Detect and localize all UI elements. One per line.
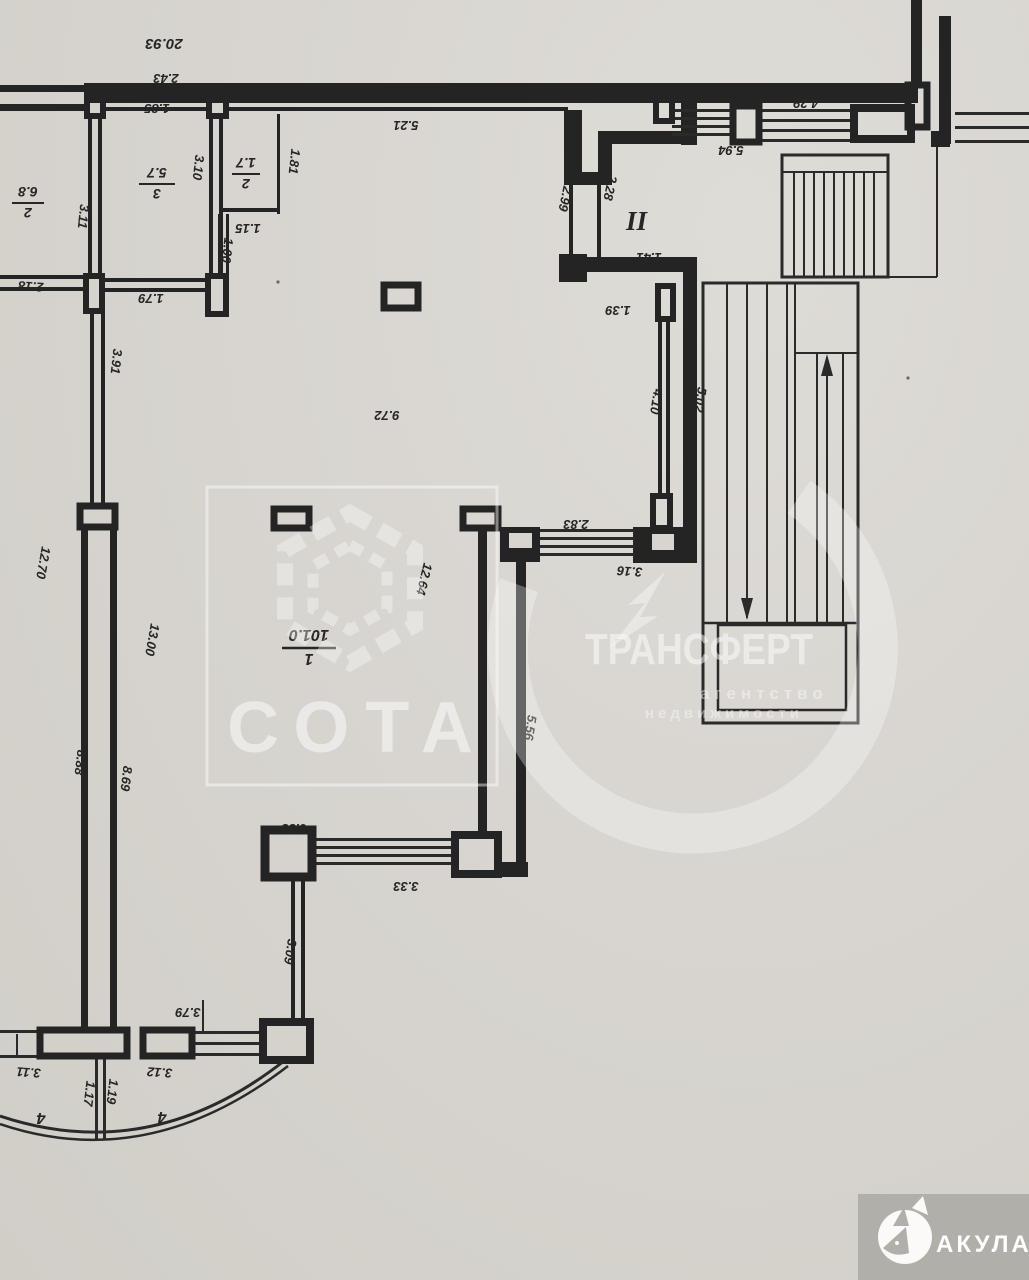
dim-4-29: 4.29: [793, 96, 820, 111]
dim-8-69: 8.69: [117, 765, 135, 793]
dim-3-12: 3.12: [146, 1064, 173, 1081]
transfert-sub2: недвижимости: [645, 705, 803, 722]
dim-1-79: 1.79: [138, 291, 164, 306]
sota-hexagon-logo: [285, 513, 415, 663]
column: [208, 276, 226, 314]
dim-1-15: 1.15: [235, 221, 261, 236]
dim-4-10: 4.10: [647, 387, 666, 416]
dim-20-93: 20.93: [145, 35, 184, 52]
dim-3-16: 3.16: [616, 563, 643, 580]
room-number: 1: [304, 650, 313, 667]
dim-3-33: 3.33: [393, 879, 419, 894]
dim-13-00: 13.00: [142, 622, 163, 657]
column: [263, 1022, 310, 1060]
column: [384, 285, 418, 308]
dim-12-70: 12.70: [33, 545, 54, 580]
dim-1-00: 1.00: [219, 237, 237, 264]
column: [455, 835, 498, 874]
column: [86, 276, 102, 311]
dim-3-79: 3.79: [175, 1005, 201, 1020]
sota-title: СОТА: [227, 688, 489, 768]
column: [143, 1030, 192, 1056]
window-3-11: [0, 1030, 40, 1033]
dim-2-18: 2.18: [17, 278, 45, 295]
window-5-94: [672, 109, 733, 112]
dim-3-09: 3.09: [281, 938, 300, 966]
room-label-4-right: 4: [157, 1108, 167, 1125]
dim-8-88: 8.88: [71, 749, 89, 777]
column: [854, 108, 911, 139]
stair-arrow-down: [741, 598, 753, 620]
window-3-33: [313, 838, 455, 841]
dim-1-81: 1.81: [286, 148, 304, 175]
dim-2-83: 2.83: [563, 517, 590, 532]
column: [40, 1030, 127, 1056]
room-label-4-left: 4: [36, 1109, 46, 1126]
dim-5-21: 5.21: [393, 118, 418, 133]
scan-specks: [276, 280, 909, 379]
dim-3-11-bottom: 3.11: [16, 1064, 41, 1081]
room-number: 2: [242, 176, 251, 192]
dim-1-39: 1.39: [605, 303, 631, 318]
scanned-floor-plan-page: 20.93 2.43 1.85 3.10 1.81 1.15 1.00 3.11…: [0, 0, 1029, 1280]
dim-5-94: 5.94: [718, 143, 744, 158]
dim-1-85: 1.85: [144, 101, 170, 116]
watermark-sota: СОТА: [207, 487, 497, 785]
room-number: 3: [153, 186, 161, 202]
room-number: 2: [24, 205, 33, 221]
column: [463, 509, 498, 528]
column: [658, 286, 673, 319]
room-label-3: 3 5.7: [139, 165, 175, 202]
dimension-labels: 20.93 2.43 1.85 3.10 1.81 1.15 1.00 3.11…: [16, 35, 820, 1108]
dim-6-53: 6.53: [281, 821, 307, 836]
room-labels: 3 5.7 2 6.8 2 1.7 1 101.0 4 4 II: [12, 155, 649, 1126]
window-3-79: [194, 1031, 262, 1034]
stairwell-mark: II: [625, 206, 649, 236]
stair-arrow-up: [821, 354, 833, 376]
column: [274, 509, 309, 528]
room-label-2-small: 2 1.7: [232, 155, 260, 192]
column: [653, 496, 670, 528]
dim-3-11-top: 3.11: [75, 204, 92, 230]
dim-3-10: 3.10: [190, 154, 208, 181]
transfert-sub1: агентство: [700, 684, 828, 703]
dim-1-17: 1.17: [80, 1080, 98, 1108]
column: [80, 506, 115, 527]
dim-1-41: 1.41: [636, 250, 661, 265]
dim-2-43: 2.43: [153, 71, 180, 86]
transfert-title: ТРАНСФЕРТ: [585, 625, 813, 674]
dim-3-91: 3.91: [108, 348, 126, 375]
room-area: 5.7: [146, 165, 167, 181]
dim-1-19: 1.19: [103, 1078, 121, 1106]
room-area: 6.8: [18, 184, 38, 200]
room-area: 1.7: [235, 155, 256, 171]
column: [733, 106, 759, 142]
room-label-2: 2 6.8: [12, 184, 44, 221]
column: [265, 830, 312, 877]
wall-lines-right-edge: [955, 112, 1029, 115]
dim-9-72: 9.72: [374, 408, 400, 423]
badge-label: АКУЛА: [936, 1231, 1029, 1258]
akula-badge: АКУЛА: [858, 1194, 1029, 1280]
bay-window-arc: [0, 1061, 288, 1140]
